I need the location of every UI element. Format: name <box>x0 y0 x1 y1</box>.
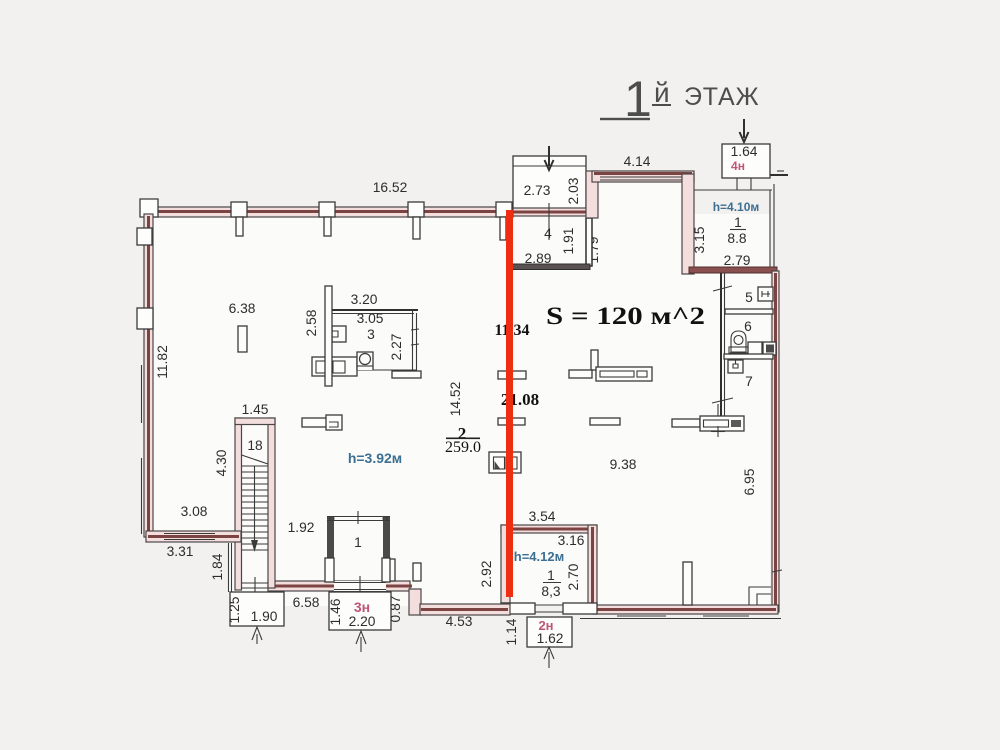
svg-text:4н: 4н <box>731 159 745 173</box>
svg-text:1.45: 1.45 <box>242 402 269 417</box>
svg-text:h=4.12м: h=4.12м <box>514 549 564 564</box>
svg-text:6.95: 6.95 <box>742 468 757 495</box>
svg-text:14.52: 14.52 <box>448 382 463 417</box>
svg-text:6.38: 6.38 <box>229 301 256 316</box>
svg-text:4: 4 <box>544 226 552 241</box>
svg-text:8,3: 8,3 <box>541 584 561 599</box>
svg-text:2.70: 2.70 <box>566 563 581 590</box>
svg-text:1: 1 <box>354 535 362 550</box>
svg-text:3.20: 3.20 <box>351 292 378 307</box>
svg-text:3.05: 3.05 <box>357 311 384 326</box>
svg-text:1.90: 1.90 <box>251 609 278 624</box>
svg-text:4.30: 4.30 <box>214 449 229 476</box>
svg-text:9.38: 9.38 <box>610 457 637 472</box>
svg-text:1.62: 1.62 <box>537 631 564 646</box>
svg-text:h=4.10м: h=4.10м <box>713 200 760 214</box>
svg-text:4.53: 4.53 <box>446 614 473 629</box>
svg-text:2.27: 2.27 <box>389 334 404 361</box>
svg-text:1.25: 1.25 <box>227 596 242 623</box>
svg-text:1.46: 1.46 <box>328 598 343 625</box>
svg-text:3.31: 3.31 <box>167 544 194 559</box>
svg-text:16.52: 16.52 <box>373 180 408 195</box>
svg-text:4.14: 4.14 <box>624 154 651 169</box>
svg-text:3.54: 3.54 <box>529 509 556 524</box>
svg-text:1: 1 <box>734 215 742 230</box>
svg-text:3.08: 3.08 <box>181 504 208 519</box>
svg-text:6.58: 6.58 <box>293 595 320 610</box>
svg-text:1.91: 1.91 <box>561 228 576 255</box>
svg-text:h=3.92м: h=3.92м <box>348 450 402 466</box>
svg-text:1.92: 1.92 <box>288 520 315 535</box>
svg-text:3: 3 <box>367 327 375 342</box>
svg-text:3.16: 3.16 <box>558 533 585 548</box>
svg-text:2.79: 2.79 <box>724 253 751 268</box>
svg-text:1: 1 <box>547 568 555 583</box>
svg-text:1.14: 1.14 <box>504 618 519 645</box>
svg-text:2.03: 2.03 <box>566 177 581 204</box>
svg-text:18: 18 <box>247 438 263 453</box>
svg-text:3н: 3н <box>354 599 370 615</box>
svg-text:11.82: 11.82 <box>155 345 170 379</box>
svg-text:2.92: 2.92 <box>479 561 494 588</box>
svg-text:1.64: 1.64 <box>731 144 758 159</box>
svg-text:8.8: 8.8 <box>727 231 747 246</box>
svg-text:ЭТАЖ: ЭТАЖ <box>684 83 759 111</box>
svg-text:S = 120 м^2: S = 120 м^2 <box>546 303 705 330</box>
svg-text:2.58: 2.58 <box>304 309 319 336</box>
svg-text:3.15: 3.15 <box>692 226 707 253</box>
svg-text:й: й <box>654 77 670 108</box>
svg-text:2.73: 2.73 <box>524 183 551 198</box>
svg-text:7: 7 <box>745 374 753 389</box>
svg-text:2.20: 2.20 <box>349 614 376 629</box>
svg-text:6: 6 <box>744 319 752 334</box>
svg-text:1.84: 1.84 <box>210 553 225 580</box>
svg-text:259.0: 259.0 <box>445 439 481 456</box>
svg-text:5: 5 <box>745 290 753 305</box>
